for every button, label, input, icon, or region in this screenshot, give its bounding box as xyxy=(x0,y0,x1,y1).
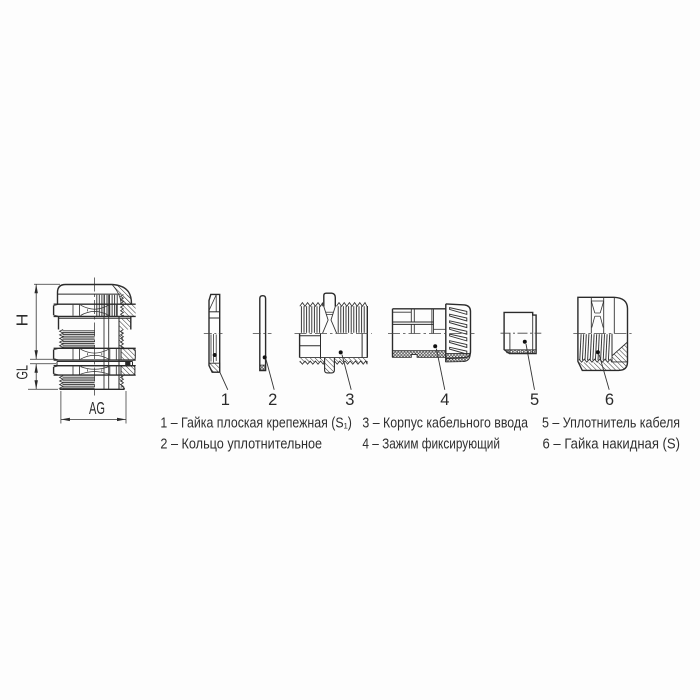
svg-text:3 – Корпус кабельного ввода: 3 – Корпус кабельного ввода xyxy=(362,415,528,431)
svg-text:GL: GL xyxy=(15,365,32,380)
svg-text:4: 4 xyxy=(440,391,449,409)
svg-text:5: 5 xyxy=(530,391,539,409)
svg-text:H: H xyxy=(15,314,32,327)
svg-text:4 – Зажим фиксирующий: 4 – Зажим фиксирующий xyxy=(362,437,500,453)
svg-text:2 – Кольцо уплотнительное: 2 – Кольцо уплотнительное xyxy=(160,437,322,453)
svg-text:6: 6 xyxy=(605,391,614,409)
svg-text:6 – Гайка накидная (S): 6 – Гайка накидная (S) xyxy=(543,437,681,453)
svg-text:5 – Уплотнитель кабеля: 5 – Уплотнитель кабеля xyxy=(542,415,680,431)
svg-text:3: 3 xyxy=(345,391,354,409)
svg-text:2: 2 xyxy=(268,391,277,409)
svg-text:1: 1 xyxy=(221,391,230,409)
svg-text:AG: AG xyxy=(89,398,105,418)
svg-text:1 – Гайка плоская крепежная (S: 1 – Гайка плоская крепежная (S₁) xyxy=(160,415,352,431)
